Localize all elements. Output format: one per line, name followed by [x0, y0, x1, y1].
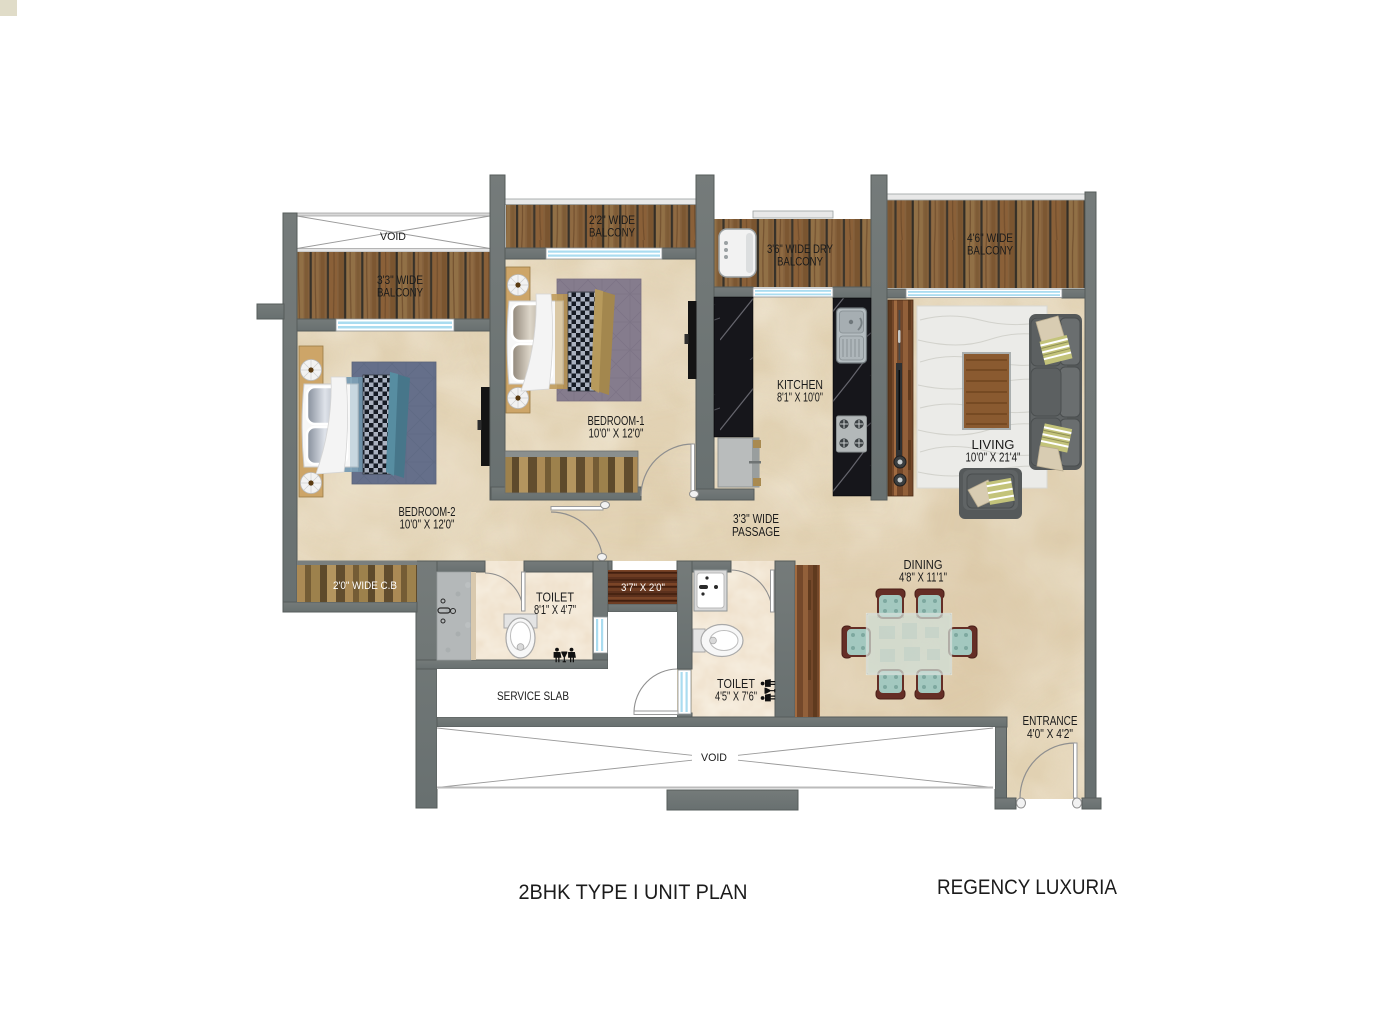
svg-text:PASSAGE: PASSAGE: [732, 524, 780, 539]
svg-text:4'5" X 7'6": 4'5" X 7'6": [715, 689, 757, 704]
svg-text:BALCONY: BALCONY: [377, 288, 423, 300]
svg-text:3'6" WIDE DRY: 3'6" WIDE DRY: [767, 244, 833, 256]
svg-text:REGENCY LUXURIA: REGENCY LUXURIA: [937, 875, 1118, 899]
svg-text:2'0" WIDE C.B: 2'0" WIDE C.B: [333, 580, 397, 592]
svg-text:10'0" X 12'0": 10'0" X 12'0": [400, 517, 455, 532]
svg-text:4'0" X 4'2": 4'0" X 4'2": [1027, 726, 1073, 741]
svg-text:10'0" X 21'4": 10'0" X 21'4": [966, 450, 1021, 465]
svg-text:VOID: VOID: [380, 231, 406, 243]
svg-text:8'1" X 4'7": 8'1" X 4'7": [534, 602, 576, 617]
svg-text:10'0" X 12'0": 10'0" X 12'0": [589, 426, 644, 441]
svg-text:2BHK TYPE I UNIT PLAN: 2BHK TYPE I UNIT PLAN: [519, 880, 748, 904]
svg-text:4'8" X 11'1": 4'8" X 11'1": [899, 570, 947, 585]
svg-text:VOID: VOID: [701, 752, 727, 764]
svg-text:8'1" X 10'0": 8'1" X 10'0": [777, 390, 823, 405]
svg-text:BALCONY: BALCONY: [967, 246, 1013, 258]
svg-text:4'6" WIDE: 4'6" WIDE: [967, 233, 1013, 245]
svg-text:3'7" X 2'0": 3'7" X 2'0": [621, 582, 665, 594]
svg-text:2'2" WIDE: 2'2" WIDE: [589, 215, 635, 227]
svg-text:BALCONY: BALCONY: [777, 257, 823, 269]
svg-text:SERVICE SLAB: SERVICE SLAB: [497, 691, 569, 703]
svg-text:3'3" WIDE: 3'3" WIDE: [377, 275, 423, 287]
svg-text:BALCONY: BALCONY: [589, 228, 635, 240]
